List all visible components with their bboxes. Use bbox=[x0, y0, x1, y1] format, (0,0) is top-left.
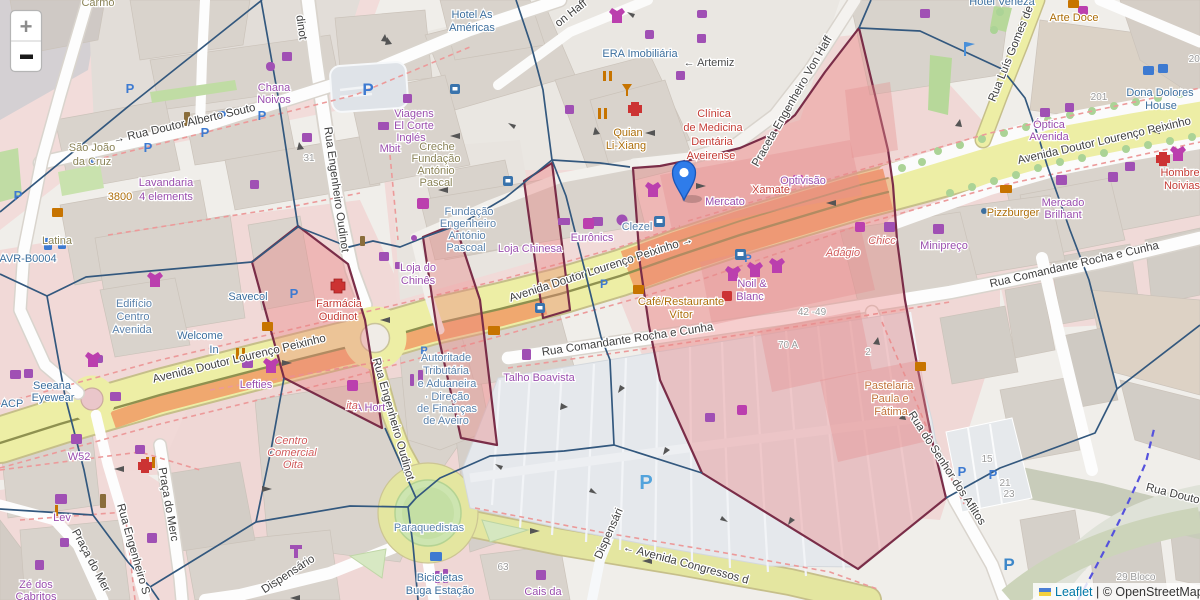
svg-text:Tributária: Tributária bbox=[423, 365, 470, 377]
svg-text:Blanc: Blanc bbox=[736, 291, 764, 303]
svg-text:63: 63 bbox=[497, 562, 509, 573]
svg-text:Loja Chinesa: Loja Chinesa bbox=[498, 243, 563, 255]
svg-text:· Direção: · Direção bbox=[425, 391, 470, 403]
svg-text:Loja do: Loja do bbox=[400, 262, 436, 274]
svg-text:Savecol: Savecol bbox=[228, 291, 267, 303]
svg-text:Carmo: Carmo bbox=[81, 0, 114, 9]
svg-text:Fátima: Fátima bbox=[874, 406, 909, 418]
svg-text:Quian: Quian bbox=[613, 127, 642, 139]
svg-text:Pascoal: Pascoal bbox=[446, 242, 485, 254]
svg-text:P: P bbox=[290, 286, 299, 301]
svg-text:Bicicletas: Bicicletas bbox=[417, 572, 464, 584]
svg-text:Avenida: Avenida bbox=[1029, 131, 1069, 143]
svg-text:P: P bbox=[144, 140, 153, 155]
svg-text:Zé dos: Zé dos bbox=[19, 579, 53, 591]
svg-text:← Artemiz: ← Artemiz bbox=[684, 57, 735, 69]
svg-text:Chinês: Chinês bbox=[401, 275, 436, 287]
svg-text:House: House bbox=[1145, 100, 1177, 112]
svg-text:Noivias: Noivias bbox=[1164, 180, 1200, 192]
svg-text:Minipreço: Minipreço bbox=[920, 240, 968, 252]
svg-text:de Aveiro: de Aveiro bbox=[423, 415, 469, 427]
svg-text:42 -49: 42 -49 bbox=[798, 307, 827, 318]
svg-text:P: P bbox=[639, 472, 652, 494]
svg-text:29 Bloco: 29 Bloco bbox=[1117, 572, 1156, 583]
svg-text:15: 15 bbox=[981, 454, 993, 465]
svg-text:ita: ita bbox=[346, 400, 358, 412]
svg-text:Brilhant: Brilhant bbox=[1044, 209, 1081, 221]
svg-text:P: P bbox=[126, 81, 135, 96]
svg-text:Avenida: Avenida bbox=[112, 324, 152, 336]
svg-text:Li-Xiang: Li-Xiang bbox=[606, 140, 646, 152]
svg-text:Dona Dolores: Dona Dolores bbox=[1126, 87, 1194, 99]
svg-text:Café/Restaurante: Café/Restaurante bbox=[638, 296, 724, 308]
svg-text:P: P bbox=[258, 108, 267, 123]
svg-text:Mercato: Mercato bbox=[705, 196, 745, 208]
svg-text:Paula e: Paula e bbox=[871, 393, 908, 405]
svg-text:Clezel: Clezel bbox=[622, 221, 653, 233]
svg-text:Dentária: Dentária bbox=[691, 136, 733, 148]
svg-text:Chicc: Chicc bbox=[868, 235, 896, 247]
svg-text:Paraquedistas: Paraquedistas bbox=[394, 522, 465, 534]
svg-text:de Finanças: de Finanças bbox=[417, 403, 477, 415]
svg-text:P: P bbox=[1003, 555, 1014, 574]
svg-text:Talho Boavista: Talho Boavista bbox=[503, 372, 575, 384]
svg-text:Cais da: Cais da bbox=[524, 586, 562, 598]
svg-text:António: António bbox=[417, 165, 454, 177]
svg-text:Welcome: Welcome bbox=[177, 330, 223, 342]
svg-text:Hotel Veneza: Hotel Veneza bbox=[969, 0, 1035, 8]
svg-text:P: P bbox=[362, 80, 373, 99]
svg-text:P: P bbox=[14, 188, 23, 203]
svg-text:4 elements: 4 elements bbox=[139, 191, 193, 203]
svg-text:Adágio: Adágio bbox=[825, 247, 860, 259]
svg-text:2: 2 bbox=[865, 347, 871, 358]
svg-text:Pizzburger: Pizzburger bbox=[987, 207, 1040, 219]
svg-text:31: 31 bbox=[303, 153, 315, 164]
svg-text:Lefties: Lefties bbox=[240, 379, 273, 391]
svg-text:Leaflet | © OpenStreetMap: Leaflet | © OpenStreetMap bbox=[1055, 585, 1200, 599]
svg-text:Américas: Américas bbox=[449, 22, 495, 34]
svg-text:Eurônics: Eurônics bbox=[571, 232, 614, 244]
svg-text:Autoritade: Autoritade bbox=[421, 352, 471, 364]
svg-text:Hotel As: Hotel As bbox=[452, 9, 493, 21]
svg-text:Clínica: Clínica bbox=[697, 108, 732, 120]
svg-text:Seeana: Seeana bbox=[33, 380, 72, 392]
svg-text:P: P bbox=[989, 467, 998, 482]
svg-text:Pascal: Pascal bbox=[419, 177, 452, 189]
svg-text:Centro: Centro bbox=[274, 435, 307, 447]
svg-text:70 A: 70 A bbox=[778, 340, 798, 351]
svg-text:Mercado: Mercado bbox=[1042, 197, 1085, 209]
svg-text:Latina: Latina bbox=[42, 235, 73, 247]
svg-text:Oudinot: Oudinot bbox=[319, 311, 358, 323]
svg-text:Farmácia: Farmácia bbox=[316, 298, 363, 310]
svg-text:de Medicina: de Medicina bbox=[683, 122, 743, 134]
svg-text:São João: São João bbox=[69, 142, 115, 154]
svg-text:Aveirense: Aveirense bbox=[687, 150, 736, 162]
svg-text:da Cruz: da Cruz bbox=[73, 156, 112, 168]
svg-text:Chana: Chana bbox=[258, 82, 291, 94]
svg-text:António: António bbox=[448, 230, 485, 242]
svg-text:Fundação: Fundação bbox=[445, 206, 494, 218]
svg-text:Óptica: Óptica bbox=[1033, 118, 1066, 131]
svg-text:W52: W52 bbox=[68, 451, 91, 463]
svg-text:Centro: Centro bbox=[116, 311, 149, 323]
svg-text:Creche: Creche bbox=[419, 141, 454, 153]
svg-text:Noivos: Noivos bbox=[257, 94, 291, 106]
svg-text:A Hort: A Hort bbox=[355, 402, 386, 414]
svg-text:Noil &: Noil & bbox=[737, 278, 767, 290]
svg-text:Cabritos: Cabritos bbox=[16, 591, 57, 600]
svg-text:201: 201 bbox=[1189, 54, 1200, 65]
svg-text:In: In bbox=[209, 344, 218, 356]
svg-text:Eyewear: Eyewear bbox=[32, 392, 75, 404]
svg-text:P: P bbox=[201, 125, 210, 140]
svg-text:e Aduaneira: e Aduaneira bbox=[418, 378, 478, 390]
svg-text:Vítor: Vítor bbox=[669, 309, 693, 321]
svg-text:Fundação: Fundação bbox=[412, 153, 461, 165]
svg-text:Optivisão: Optivisão bbox=[780, 175, 826, 187]
svg-text:ACP: ACP bbox=[1, 398, 24, 410]
svg-text:Mbit: Mbit bbox=[380, 143, 401, 155]
svg-text:Lavandaria: Lavandaria bbox=[139, 177, 194, 189]
svg-text:Oita: Oita bbox=[283, 459, 303, 471]
svg-text:201: 201 bbox=[1091, 92, 1108, 103]
svg-text:ERA Imobiliária: ERA Imobiliária bbox=[602, 48, 678, 60]
svg-text:Buga Estação: Buga Estação bbox=[406, 585, 475, 597]
svg-text:Arte Doce: Arte Doce bbox=[1050, 12, 1099, 24]
svg-text:Hombre: Hombre bbox=[1160, 167, 1199, 179]
svg-text:3800: 3800 bbox=[108, 191, 132, 203]
svg-text:+: + bbox=[20, 14, 33, 39]
svg-text:21: 21 bbox=[999, 478, 1011, 489]
svg-text:Engenheiro: Engenheiro bbox=[440, 218, 496, 230]
svg-text:Viagens: Viagens bbox=[394, 108, 434, 120]
svg-text:Comercial: Comercial bbox=[267, 447, 317, 459]
svg-text:El Corte: El Corte bbox=[394, 120, 434, 132]
svg-text:Lev: Lev bbox=[53, 512, 71, 524]
svg-text:23: 23 bbox=[1003, 489, 1015, 500]
svg-text:AVR-B0004: AVR-B0004 bbox=[0, 253, 57, 265]
svg-text:Edifício: Edifício bbox=[116, 298, 152, 310]
svg-text:P: P bbox=[600, 277, 608, 291]
svg-text:Pastelaria: Pastelaria bbox=[865, 380, 915, 392]
